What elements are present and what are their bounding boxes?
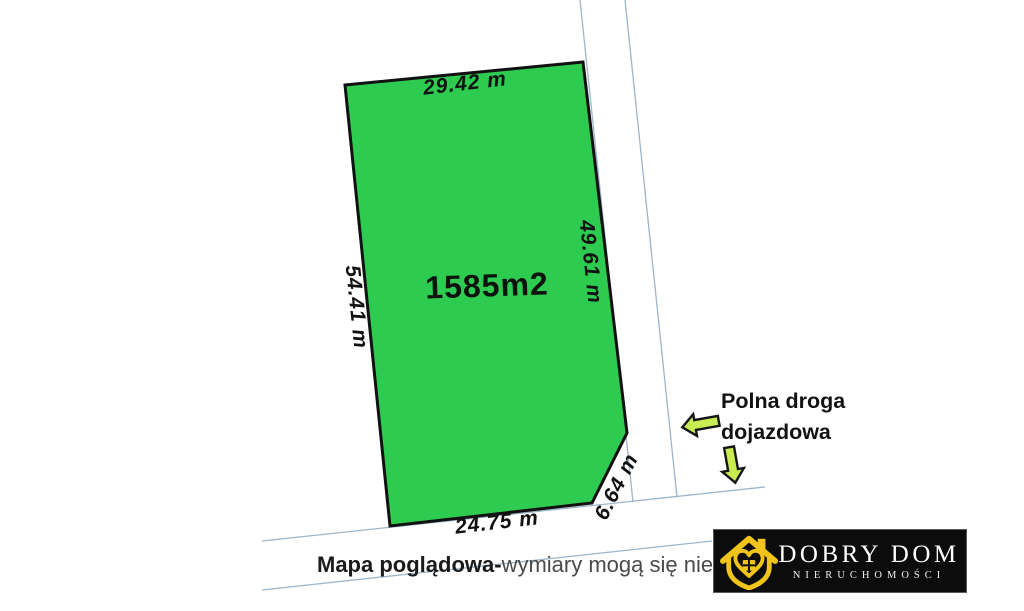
access-road-label-line1: Polna droga: [721, 386, 845, 417]
plot-overview-map: 29.42 m 54.41 m 49.61 m 24.75 m 6.64 m 1…: [0, 0, 1024, 611]
house-heart-icon: [720, 532, 778, 590]
access-road-label: Polna droga dojazdowa: [721, 386, 845, 448]
agency-logo-text: DOBRY DOM NIERUCHOMOŚCI: [778, 542, 960, 581]
arrow-left-icon: [680, 410, 720, 438]
access-road-label-line2: dojazdowa: [721, 417, 845, 448]
plot-area-label: 1585m2: [425, 265, 550, 306]
agency-name: DOBRY DOM: [778, 542, 959, 568]
boundary-line-road-right: [625, 0, 677, 497]
agency-subtitle: NIERUCHOMOŚCI: [793, 570, 946, 581]
agency-logo: DOBRY DOM NIERUCHOMOŚCI: [713, 529, 967, 593]
arrow-down-icon: [718, 445, 746, 484]
map-caption-bold: Mapa poglądowa-: [317, 552, 502, 577]
